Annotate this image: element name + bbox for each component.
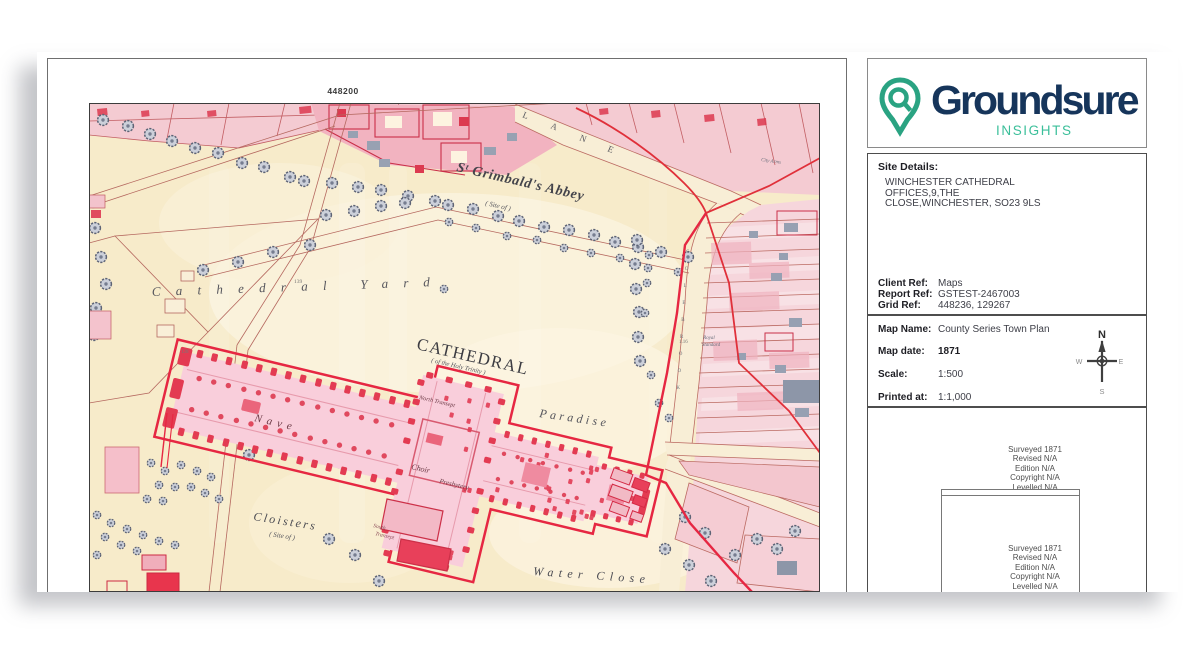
svg-text:N: N xyxy=(1098,329,1106,341)
svg-text:E: E xyxy=(682,301,685,306)
svg-text:S: S xyxy=(1099,387,1104,396)
svg-text:Royal: Royal xyxy=(702,336,715,341)
svg-text:W: W xyxy=(1076,359,1083,366)
svg-text:O: O xyxy=(678,369,682,374)
svg-text:O: O xyxy=(679,352,683,357)
svg-text:128: 128 xyxy=(181,350,189,355)
svg-text:L: L xyxy=(684,284,687,289)
svg-text:139: 139 xyxy=(294,279,303,285)
svg-text:E: E xyxy=(1119,359,1124,366)
svg-text:Standard: Standard xyxy=(702,343,721,348)
svg-text:O: O xyxy=(685,267,689,272)
svg-text:1.16: 1.16 xyxy=(679,340,688,345)
svg-text:K: K xyxy=(676,386,680,391)
